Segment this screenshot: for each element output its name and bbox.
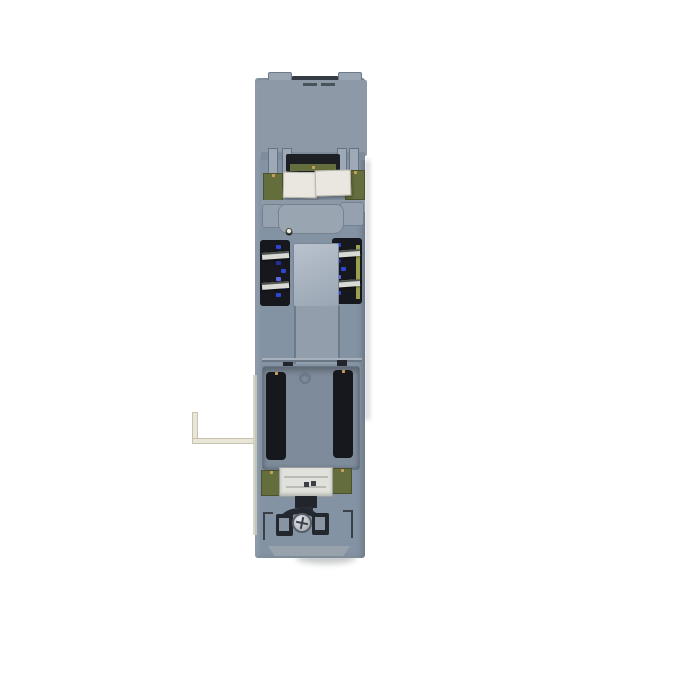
label-plate-right — [315, 170, 352, 197]
pin-contact — [342, 370, 345, 373]
pad-dot — [354, 171, 357, 174]
pin-header-right — [333, 370, 353, 458]
blue-component — [276, 261, 281, 265]
module-foot — [268, 546, 350, 556]
label-plate-left — [283, 172, 317, 199]
groove-right-horizontal — [343, 510, 353, 512]
pad-dot — [272, 174, 275, 177]
clip-block-inner-right — [315, 517, 325, 530]
module-side-shadow — [365, 160, 370, 420]
pcb-pad-top-left — [263, 173, 283, 203]
pcb-pad-bottom-left — [261, 470, 281, 496]
module-left-edge-strip — [253, 375, 257, 535]
blue-component — [341, 267, 346, 271]
groove-left-vertical — [263, 514, 265, 540]
card-connector-left — [260, 240, 290, 306]
contact-dot — [286, 228, 292, 234]
center-column — [294, 306, 340, 364]
pad-dot — [341, 469, 344, 472]
vent-divider-mark — [321, 83, 335, 86]
plate-mark — [304, 482, 309, 487]
product-photo-stage — [0, 0, 676, 676]
contact-dot-row — [286, 226, 338, 236]
clip-block-inner-left — [279, 518, 289, 531]
blue-component — [276, 245, 281, 249]
blue-component — [281, 269, 286, 273]
center-spacer-block — [293, 243, 339, 307]
plate-mark — [311, 481, 316, 486]
blue-component — [276, 277, 281, 281]
pin-header-left — [266, 372, 286, 460]
groove-right-vertical — [351, 512, 353, 538]
pad-dot — [270, 471, 273, 474]
plc-module — [252, 70, 368, 560]
emboss-circle — [299, 372, 311, 384]
pcb-pad-bottom-right — [332, 468, 352, 494]
vent-divider-mark — [303, 83, 317, 86]
plate-marking — [284, 476, 328, 478]
release-wire-horizontal — [192, 438, 254, 444]
connector-plate-white — [279, 467, 333, 497]
step-line — [262, 360, 362, 362]
edge-dot — [312, 166, 315, 169]
vent-grille — [259, 80, 367, 156]
pin-contact — [275, 372, 278, 375]
mounting-screw — [292, 513, 312, 533]
groove-left-horizontal — [263, 512, 273, 514]
blue-component — [276, 293, 281, 297]
